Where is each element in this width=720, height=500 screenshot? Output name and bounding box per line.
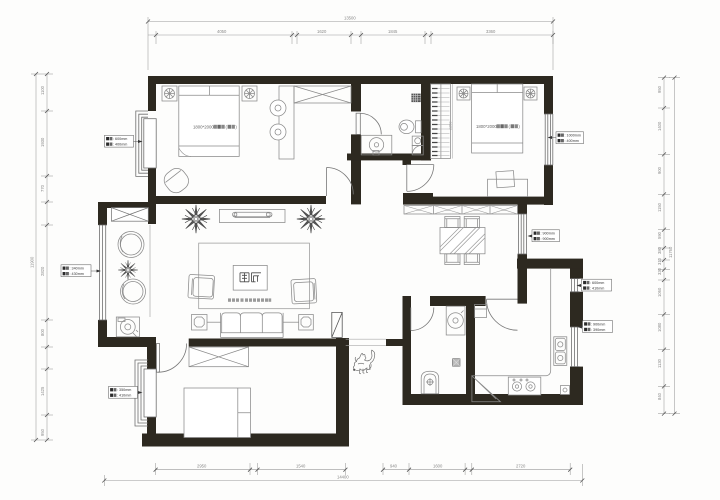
svg-text:: 410mm: : 410mm xyxy=(590,287,604,291)
svg-text:1845: 1845 xyxy=(388,29,398,34)
svg-text:1620: 1620 xyxy=(317,29,327,34)
svg-text:11760: 11760 xyxy=(668,246,673,258)
svg-text:1060: 1060 xyxy=(657,287,662,297)
svg-text:: 430mm: : 430mm xyxy=(70,272,84,276)
svg-text:1600: 1600 xyxy=(433,464,443,469)
svg-text:1130: 1130 xyxy=(657,358,662,368)
svg-text:380: 380 xyxy=(657,246,662,254)
svg-text:: 390mm: : 390mm xyxy=(591,328,605,332)
svg-text:: 1000mm: : 1000mm xyxy=(565,134,581,138)
svg-text:1400: 1400 xyxy=(657,121,662,131)
svg-text:1100: 1100 xyxy=(40,85,45,95)
svg-text:4050: 4050 xyxy=(217,29,227,34)
svg-text:: 600mm: : 600mm xyxy=(590,281,604,285)
svg-text:2950: 2950 xyxy=(197,464,207,469)
svg-text:1080: 1080 xyxy=(657,322,662,332)
svg-text:1425: 1425 xyxy=(40,386,45,396)
svg-text:310: 310 xyxy=(657,257,662,265)
svg-text:: 600mm: : 600mm xyxy=(113,137,127,141)
svg-text:590: 590 xyxy=(657,231,662,239)
svg-text:2250: 2250 xyxy=(449,122,453,130)
svg-text:800: 800 xyxy=(40,328,45,336)
svg-text:: 900mm: : 900mm xyxy=(541,232,555,236)
svg-text:13500: 13500 xyxy=(344,16,356,21)
svg-text:900: 900 xyxy=(657,166,662,174)
svg-text:940: 940 xyxy=(390,464,398,469)
svg-text:1800*2000: 1800*2000 xyxy=(193,125,214,130)
svg-text:2720: 2720 xyxy=(516,464,526,469)
svg-text:: 900mm: : 900mm xyxy=(591,322,605,326)
svg-text:1930: 1930 xyxy=(40,137,45,147)
svg-text:: 400mm: : 400mm xyxy=(565,139,579,143)
svg-text:1800*2000: 1800*2000 xyxy=(476,124,497,129)
svg-text:1150: 1150 xyxy=(657,202,662,212)
svg-text:: 350mm: : 350mm xyxy=(117,388,131,392)
svg-text:1540: 1540 xyxy=(296,464,306,469)
svg-text:2820: 2820 xyxy=(40,266,45,276)
svg-text:840: 840 xyxy=(657,392,662,400)
svg-text:770: 770 xyxy=(40,184,45,192)
svg-text:14400: 14400 xyxy=(337,475,349,480)
svg-text:950: 950 xyxy=(657,85,662,93)
svg-text:: 900mm: : 900mm xyxy=(541,237,555,241)
svg-text:330: 330 xyxy=(657,267,662,275)
svg-text:: 410mm: : 410mm xyxy=(117,394,131,398)
svg-text:11900: 11900 xyxy=(30,256,35,268)
svg-text:3360: 3360 xyxy=(486,29,496,34)
svg-text:: 340mm: : 340mm xyxy=(70,267,84,271)
svg-text:950: 950 xyxy=(40,428,45,436)
svg-text:: 400mm: : 400mm xyxy=(113,143,127,147)
